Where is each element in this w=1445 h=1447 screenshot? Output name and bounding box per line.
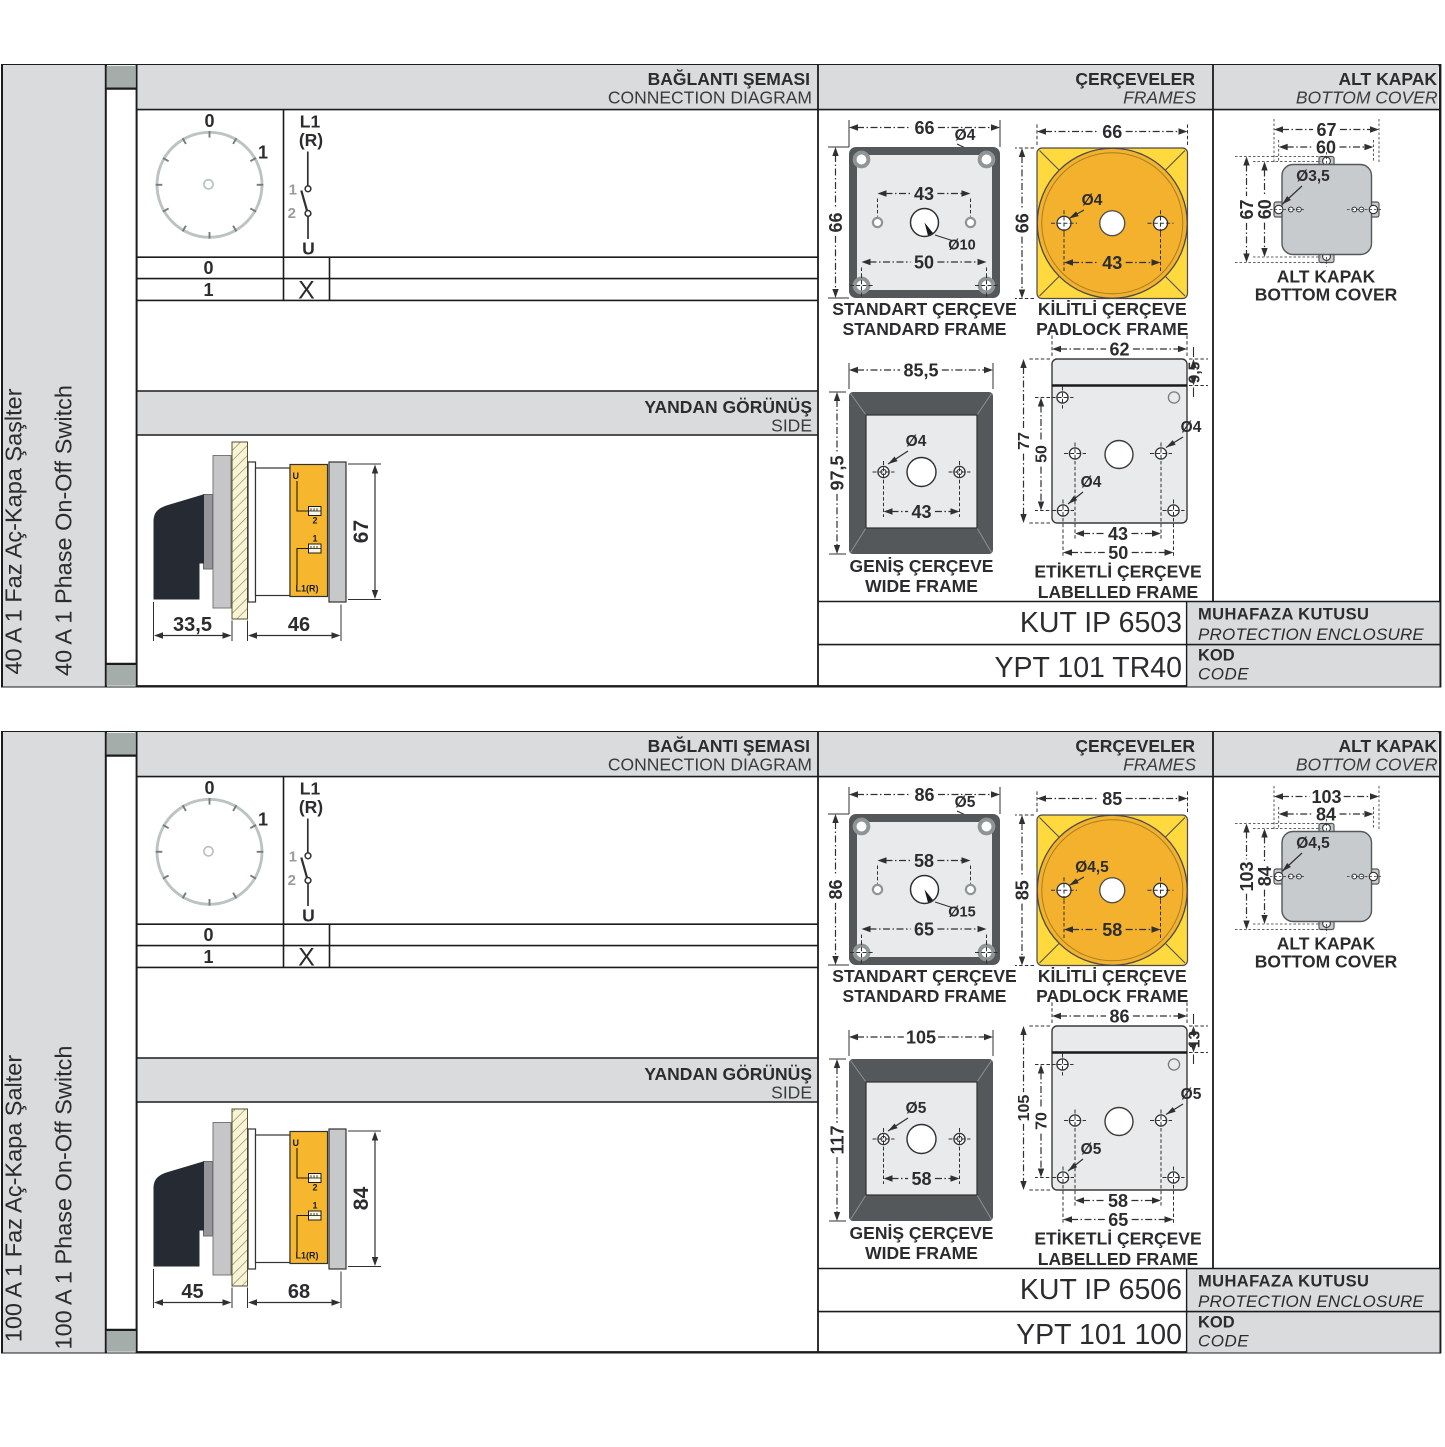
svg-text:(R): (R) — [299, 130, 323, 150]
svg-text:ALT KAPAK: ALT KAPAK — [1277, 934, 1376, 954]
svg-text:33,5: 33,5 — [173, 614, 212, 636]
svg-text:43: 43 — [1108, 524, 1128, 544]
svg-text:84: 84 — [1255, 866, 1275, 886]
svg-text:L1(R): L1(R) — [296, 1251, 319, 1261]
svg-text:86: 86 — [826, 879, 846, 899]
svg-text:ALT KAPAK: ALT KAPAK — [1277, 267, 1376, 287]
svg-text:84: 84 — [350, 1187, 373, 1211]
svg-text:BAĞLANTI ŞEMASI: BAĞLANTI ŞEMASI — [648, 68, 810, 89]
svg-text:KUT IP 6503: KUT IP 6503 — [1020, 607, 1182, 639]
svg-text:50: 50 — [1034, 445, 1051, 463]
svg-text:0: 0 — [203, 925, 213, 945]
svg-text:65: 65 — [1108, 1210, 1128, 1230]
svg-text:85: 85 — [1102, 789, 1122, 809]
svg-text:62: 62 — [1109, 339, 1129, 359]
svg-text:FRAMES: FRAMES — [1123, 755, 1196, 775]
svg-text:46: 46 — [288, 614, 310, 636]
svg-text:CODE: CODE — [1198, 1332, 1249, 1351]
svg-text:KİLİTLİ ÇERÇEVE: KİLİTLİ ÇERÇEVE — [1038, 299, 1187, 319]
svg-text:68: 68 — [288, 1281, 310, 1303]
svg-text:CONNECTION DIAGRAM: CONNECTION DIAGRAM — [608, 88, 812, 108]
svg-text:43: 43 — [914, 184, 934, 204]
svg-text:ÇERÇEVELER: ÇERÇEVELER — [1075, 69, 1195, 89]
svg-text:0: 0 — [203, 258, 213, 278]
svg-text:Ø10: Ø10 — [948, 238, 975, 254]
svg-text:105: 105 — [1016, 1095, 1033, 1122]
svg-text:13: 13 — [1187, 1031, 1204, 1049]
svg-text:1: 1 — [312, 534, 317, 544]
svg-text:YANDAN GÖRÜNÜŞ: YANDAN GÖRÜNÜŞ — [644, 397, 812, 417]
svg-text:PROTECTION ENCLOSURE: PROTECTION ENCLOSURE — [1198, 625, 1424, 644]
svg-text:STANDART ÇERÇEVE: STANDART ÇERÇEVE — [832, 966, 1016, 986]
svg-text:40 A 1 Phase On-Off Switch: 40 A 1 Phase On-Off Switch — [51, 385, 77, 676]
svg-text:CODE: CODE — [1198, 665, 1249, 684]
svg-text:Ø4: Ø4 — [1181, 419, 1202, 436]
svg-text:U: U — [302, 239, 315, 259]
svg-text:PADLOCK FRAME: PADLOCK FRAME — [1036, 319, 1188, 339]
svg-text:77: 77 — [1016, 432, 1033, 450]
svg-text:105: 105 — [906, 1027, 936, 1047]
svg-text:L1: L1 — [300, 779, 321, 799]
svg-text:Ø15: Ø15 — [948, 905, 975, 921]
svg-text:1: 1 — [203, 280, 213, 300]
svg-text:WIDE FRAME: WIDE FRAME — [865, 576, 978, 596]
svg-text:Ø4: Ø4 — [1082, 192, 1103, 209]
svg-text:85,5: 85,5 — [903, 360, 938, 380]
svg-text:GENİŞ ÇERÇEVE: GENİŞ ÇERÇEVE — [850, 556, 994, 576]
svg-text:86: 86 — [1109, 1006, 1129, 1026]
svg-text:Ø4: Ø4 — [1081, 474, 1102, 491]
svg-text:60: 60 — [1316, 137, 1336, 157]
svg-text:ÇERÇEVELER: ÇERÇEVELER — [1075, 736, 1195, 756]
svg-text:ALT KAPAK: ALT KAPAK — [1338, 736, 1437, 756]
svg-text:GENİŞ ÇERÇEVE: GENİŞ ÇERÇEVE — [850, 1223, 994, 1243]
svg-text:BOTTOM COVER: BOTTOM COVER — [1255, 952, 1398, 972]
svg-text:66: 66 — [826, 212, 846, 232]
svg-text:43: 43 — [911, 502, 931, 522]
svg-text:STANDARD FRAME: STANDARD FRAME — [843, 986, 1007, 1006]
svg-text:BOTTOM COVER: BOTTOM COVER — [1296, 88, 1438, 108]
svg-text:ALT KAPAK: ALT KAPAK — [1338, 69, 1437, 89]
svg-text:LABELLED FRAME: LABELLED FRAME — [1038, 582, 1198, 602]
svg-text:58: 58 — [911, 1169, 931, 1189]
svg-text:YPT 101 100: YPT 101 100 — [1016, 1319, 1182, 1351]
svg-text:SIDE: SIDE — [771, 1083, 812, 1103]
svg-text:BOTTOM COVER: BOTTOM COVER — [1296, 755, 1438, 775]
svg-text:Ø3,5: Ø3,5 — [1296, 168, 1330, 185]
svg-text:84: 84 — [1316, 804, 1336, 824]
svg-text:100 A 1 Phase On-Off Switch: 100 A 1 Phase On-Off Switch — [51, 1046, 77, 1350]
svg-text:117: 117 — [827, 1125, 847, 1154]
svg-text:U: U — [293, 471, 300, 481]
svg-text:50: 50 — [914, 252, 934, 272]
svg-text:KİLİTLİ ÇERÇEVE: KİLİTLİ ÇERÇEVE — [1038, 966, 1187, 986]
svg-text:Ø5: Ø5 — [906, 1100, 927, 1117]
svg-text:SIDE: SIDE — [771, 416, 812, 436]
svg-text:9,5: 9,5 — [1187, 361, 1204, 383]
svg-text:YPT 101 TR40: YPT 101 TR40 — [995, 652, 1182, 684]
svg-text:MUHAFAZA KUTUSU: MUHAFAZA KUTUSU — [1198, 606, 1369, 624]
svg-text:70: 70 — [1034, 1112, 1051, 1130]
svg-text:CONNECTION DIAGRAM: CONNECTION DIAGRAM — [608, 755, 812, 775]
svg-text:2: 2 — [312, 1183, 317, 1193]
svg-text:Ø5: Ø5 — [1181, 1086, 1202, 1103]
svg-text:45: 45 — [181, 1281, 203, 1303]
svg-text:0: 0 — [204, 778, 214, 798]
svg-text:0: 0 — [204, 111, 214, 131]
svg-text:1: 1 — [203, 947, 213, 967]
svg-text:50: 50 — [1108, 543, 1128, 563]
svg-text:1: 1 — [312, 1201, 317, 1211]
svg-text:Ø4,5: Ø4,5 — [1075, 859, 1109, 876]
svg-text:KOD: KOD — [1198, 1314, 1235, 1332]
svg-text:58: 58 — [1108, 1191, 1128, 1211]
svg-text:U: U — [302, 906, 315, 926]
svg-text:X: X — [298, 944, 315, 972]
svg-text:MUHAFAZA KUTUSU: MUHAFAZA KUTUSU — [1198, 1273, 1369, 1291]
svg-text:66: 66 — [914, 118, 934, 138]
svg-text:BOTTOM COVER: BOTTOM COVER — [1255, 285, 1398, 305]
svg-text:U: U — [293, 1138, 300, 1148]
svg-text:1: 1 — [289, 182, 297, 199]
svg-text:1: 1 — [258, 810, 268, 830]
svg-text:ETİKETLİ ÇERÇEVE: ETİKETLİ ÇERÇEVE — [1034, 562, 1201, 582]
svg-text:85: 85 — [1012, 880, 1032, 900]
svg-text:Ø5: Ø5 — [1081, 1141, 1102, 1158]
svg-text:WIDE FRAME: WIDE FRAME — [865, 1243, 978, 1263]
svg-text:KOD: KOD — [1198, 647, 1235, 665]
svg-text:67: 67 — [350, 520, 373, 543]
svg-text:2: 2 — [288, 872, 296, 889]
svg-text:(R): (R) — [299, 797, 323, 817]
svg-text:103: 103 — [1237, 861, 1257, 891]
svg-text:66: 66 — [1102, 122, 1122, 142]
svg-text:60: 60 — [1255, 199, 1275, 219]
svg-text:BAĞLANTI ŞEMASI: BAĞLANTI ŞEMASI — [648, 735, 810, 756]
svg-text:100 A 1 Faz Aç-Kapa Şalter: 100 A 1 Faz Aç-Kapa Şalter — [1, 1055, 27, 1343]
svg-text:2: 2 — [312, 516, 317, 526]
svg-text:43: 43 — [1102, 253, 1122, 273]
svg-text:2: 2 — [288, 205, 296, 222]
svg-text:Ø4: Ø4 — [955, 127, 976, 144]
svg-text:LABELLED FRAME: LABELLED FRAME — [1038, 1249, 1198, 1269]
svg-text:66: 66 — [1012, 213, 1032, 233]
svg-text:X: X — [298, 277, 315, 305]
svg-text:STANDART ÇERÇEVE: STANDART ÇERÇEVE — [832, 299, 1016, 319]
svg-text:STANDARD FRAME: STANDARD FRAME — [843, 319, 1007, 339]
svg-text:40 A 1 Faz Aç-Kapa Şaşlter: 40 A 1 Faz Aç-Kapa Şaşlter — [1, 388, 27, 674]
svg-text:Ø4,5: Ø4,5 — [1296, 835, 1330, 852]
svg-text:1: 1 — [289, 849, 297, 866]
svg-text:L1(R): L1(R) — [296, 584, 319, 594]
svg-text:86: 86 — [914, 785, 934, 805]
svg-text:67: 67 — [1237, 199, 1257, 219]
svg-text:KUT IP 6506: KUT IP 6506 — [1020, 1274, 1182, 1306]
svg-text:YANDAN GÖRÜNÜŞ: YANDAN GÖRÜNÜŞ — [644, 1064, 812, 1084]
svg-text:97,5: 97,5 — [827, 455, 847, 490]
svg-text:1: 1 — [258, 143, 268, 163]
svg-text:58: 58 — [914, 851, 934, 871]
svg-text:L1: L1 — [300, 112, 321, 132]
svg-text:PROTECTION ENCLOSURE: PROTECTION ENCLOSURE — [1198, 1292, 1424, 1311]
svg-text:PADLOCK FRAME: PADLOCK FRAME — [1036, 986, 1188, 1006]
svg-text:58: 58 — [1102, 920, 1122, 940]
svg-text:Ø5: Ø5 — [955, 794, 976, 811]
svg-text:ETİKETLİ ÇERÇEVE: ETİKETLİ ÇERÇEVE — [1034, 1229, 1201, 1249]
svg-text:65: 65 — [914, 919, 934, 939]
svg-text:FRAMES: FRAMES — [1123, 88, 1196, 108]
svg-text:Ø4: Ø4 — [906, 433, 927, 450]
